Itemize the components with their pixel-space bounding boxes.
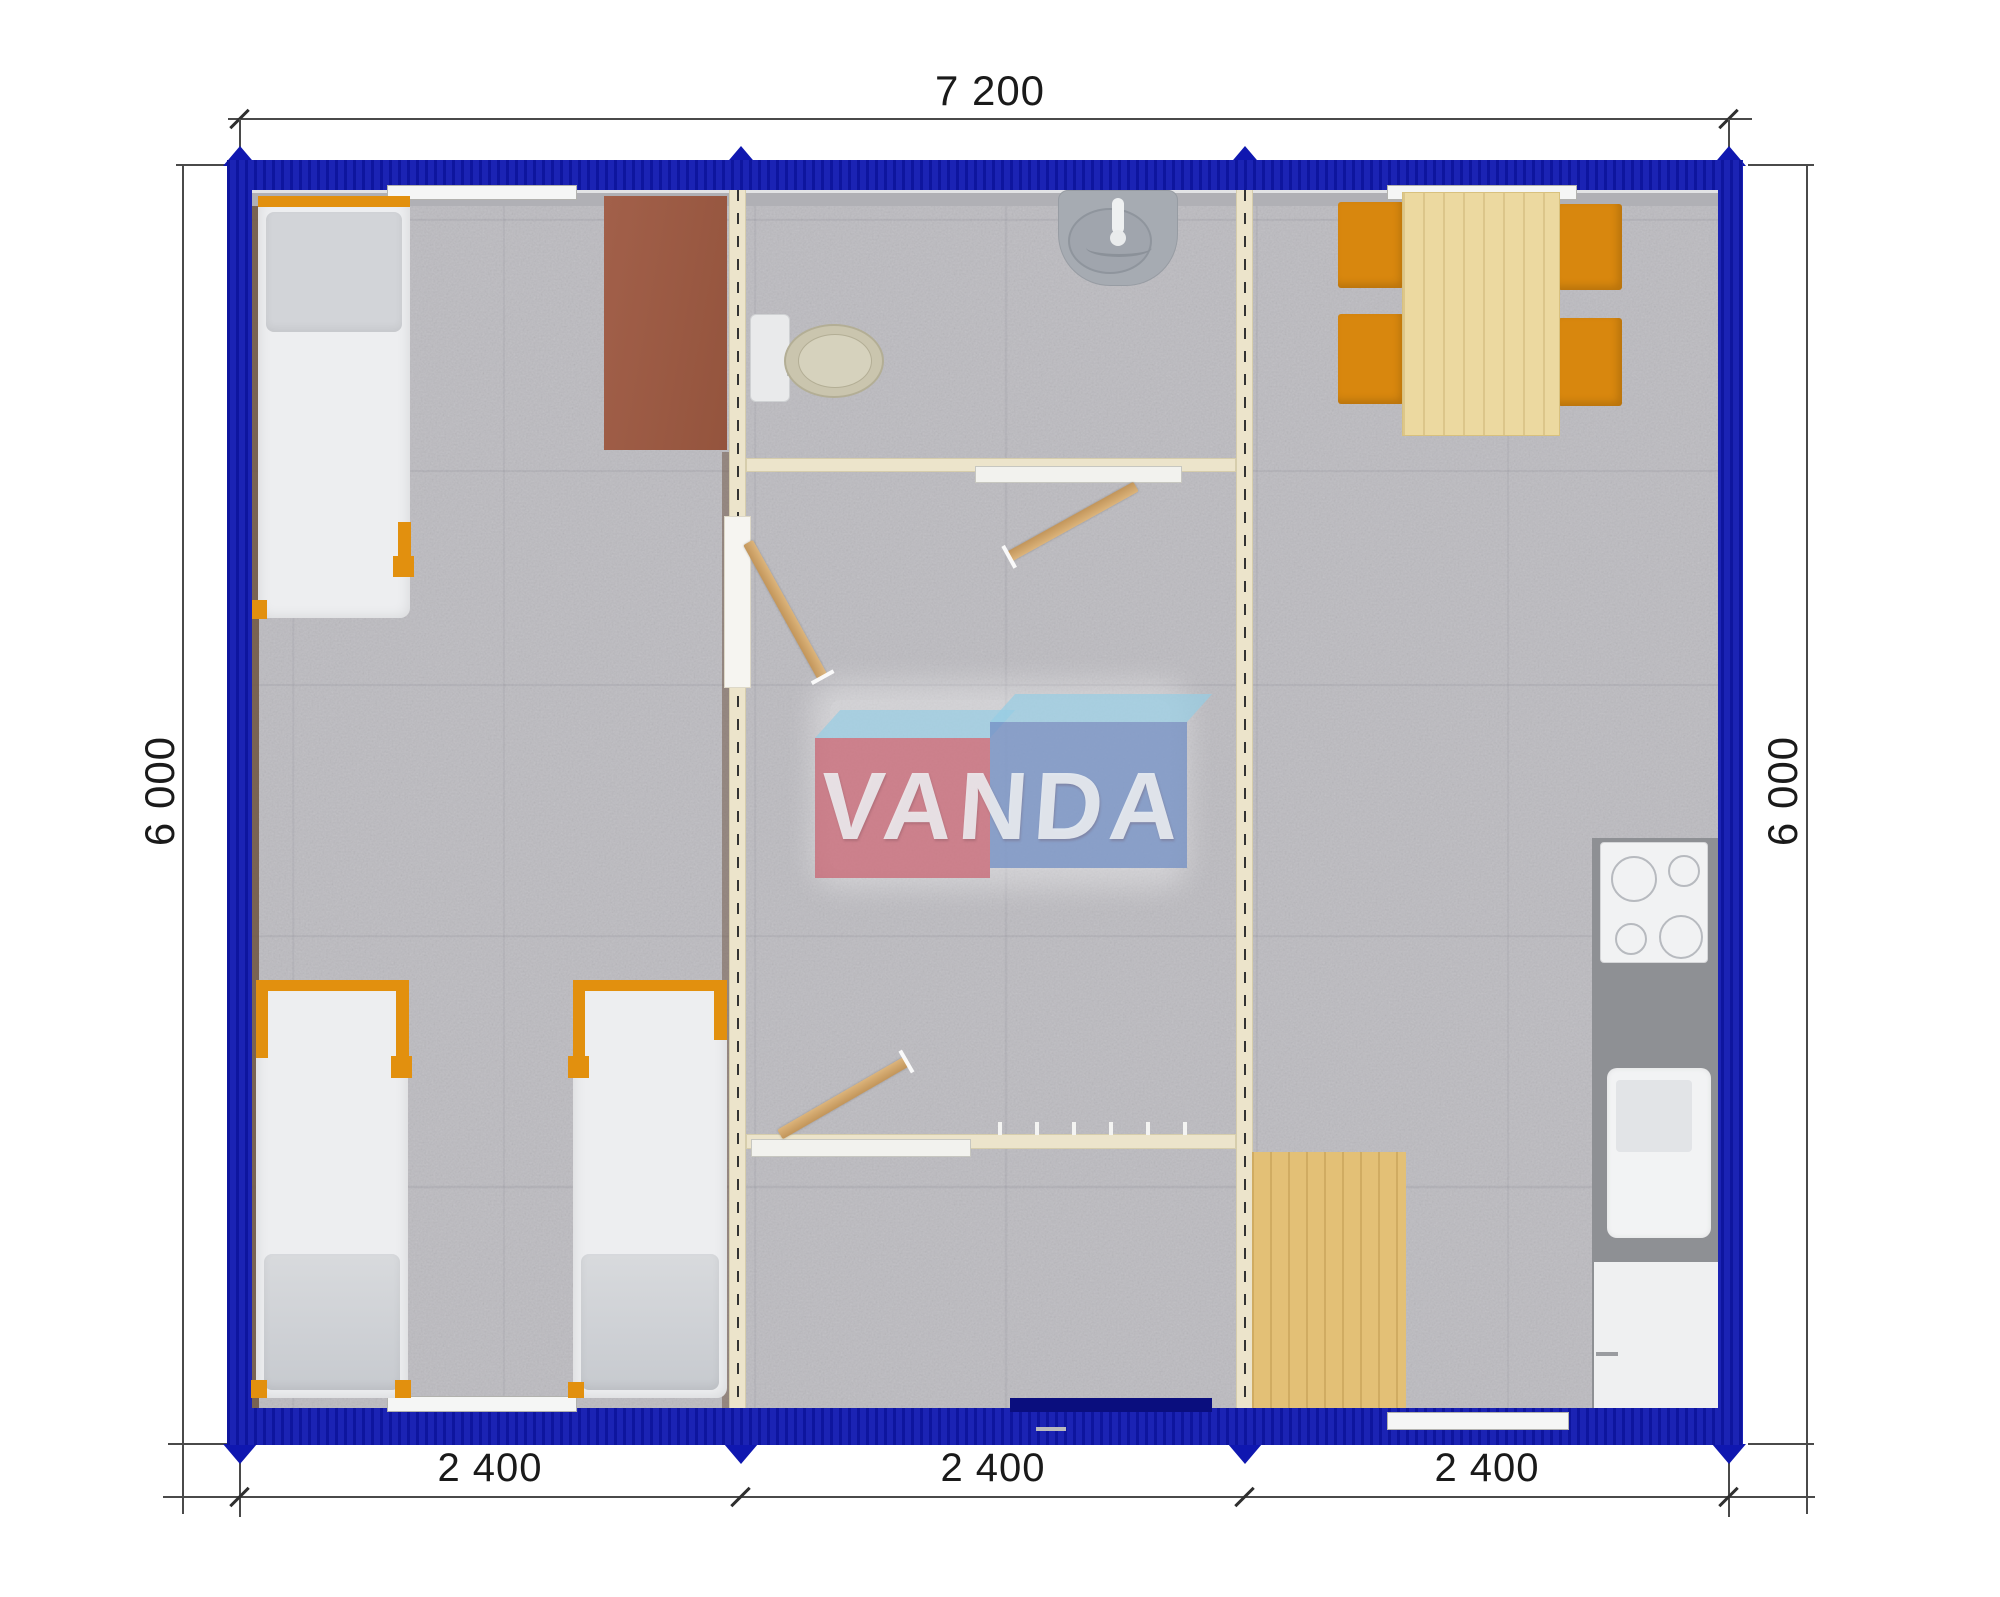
bed-frame-rail xyxy=(573,980,727,991)
bed-frame-foot xyxy=(568,1382,584,1398)
bed-frame-post xyxy=(256,980,268,1058)
wood-floor-mat xyxy=(1252,1152,1406,1408)
vestibule-sliding-door xyxy=(751,1139,971,1157)
window xyxy=(387,185,577,200)
wall-hook xyxy=(1072,1122,1076,1135)
faucet-icon xyxy=(1112,198,1124,234)
partition-wall-right xyxy=(1236,190,1253,1408)
burner-icon xyxy=(1659,915,1703,959)
bed-frame-post xyxy=(573,980,585,1058)
dim-label-height-right: 6 000 xyxy=(1762,691,1804,891)
dim-line-bottom xyxy=(163,1496,1815,1498)
bed-frame-rail xyxy=(256,980,408,991)
bed-frame-post xyxy=(714,980,727,1040)
desk-table xyxy=(604,196,727,450)
bed-frame-foot xyxy=(251,1380,267,1398)
kitchen-sink-basin xyxy=(1616,1080,1692,1152)
watermark-text: VANDA xyxy=(805,742,1199,872)
bed-pillow xyxy=(266,212,402,332)
dim-label-module-2: 2 400 xyxy=(893,1448,1093,1488)
module-joint-arrow-icon xyxy=(1228,1444,1262,1464)
dim-line-right xyxy=(1806,164,1808,1514)
bed-frame-foot xyxy=(252,600,267,619)
cabinet-handle xyxy=(1596,1352,1618,1356)
burner-icon xyxy=(1668,855,1700,887)
module-joint-arrow-icon xyxy=(223,1444,257,1464)
chair xyxy=(1558,204,1622,290)
bed-frame-foot xyxy=(395,1380,411,1398)
partition-wall-left xyxy=(729,190,746,1408)
bed-frame-foot xyxy=(393,556,414,577)
wall-hook xyxy=(1109,1122,1113,1135)
wall-hook xyxy=(1035,1122,1039,1135)
burner-icon xyxy=(1611,856,1657,902)
dim-line-top xyxy=(228,118,1752,120)
bed-frame-foot xyxy=(568,1056,589,1078)
chair xyxy=(1338,202,1404,288)
bed-frame-rail xyxy=(258,196,410,207)
bed-frame-post xyxy=(396,980,409,1058)
bed-pillow xyxy=(581,1254,719,1390)
wall-hook xyxy=(1146,1122,1150,1135)
base-cabinet xyxy=(1594,1262,1718,1408)
dim-label-height-left: 6 000 xyxy=(139,691,181,891)
chair xyxy=(1558,318,1622,406)
bed-frame-foot xyxy=(391,1056,412,1078)
washbasin-drain-curve xyxy=(1086,238,1152,257)
entrance-door-handle xyxy=(1036,1427,1066,1431)
bed-pillow xyxy=(264,1254,400,1390)
window xyxy=(387,1396,577,1412)
dim-ext xyxy=(1748,164,1814,166)
burner-icon xyxy=(1615,923,1647,955)
toilet-seat xyxy=(798,334,872,388)
floor-plan-canvas: 7 200 6 000 6 000 2 400 2 400 2 400 xyxy=(0,0,2000,1597)
wall-hook xyxy=(1183,1122,1187,1135)
watermark-box-top-face xyxy=(990,694,1212,722)
dining-table xyxy=(1402,192,1560,436)
bathroom-sliding-door xyxy=(975,466,1182,483)
wall-hook xyxy=(998,1122,1002,1135)
watermark-box-top-face xyxy=(815,710,1015,738)
chair xyxy=(1338,314,1404,404)
module-joint-arrow-icon xyxy=(1712,1444,1746,1464)
dim-label-module-1: 2 400 xyxy=(390,1448,590,1488)
dim-label-module-3: 2 400 xyxy=(1387,1448,1587,1488)
dim-label-total-width: 7 200 xyxy=(890,70,1090,112)
window xyxy=(1387,1412,1569,1430)
entrance-door xyxy=(1010,1398,1212,1412)
module-joint-arrow-icon xyxy=(724,1444,758,1464)
dim-ext xyxy=(1748,1443,1814,1445)
